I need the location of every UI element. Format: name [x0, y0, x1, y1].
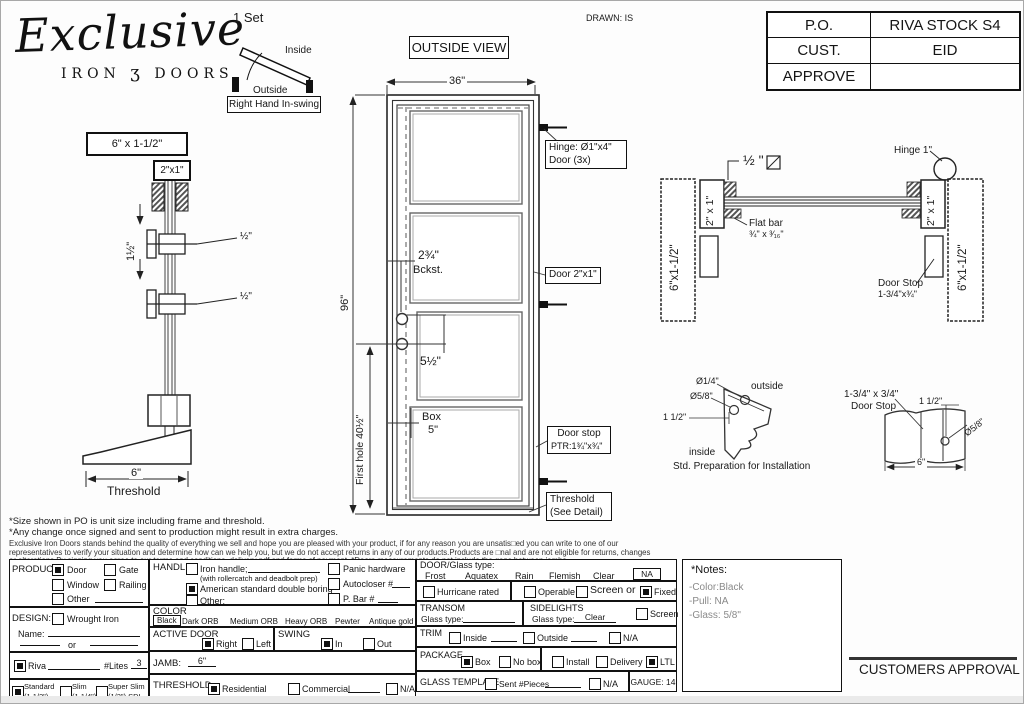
- checkbox-screen[interactable]: [576, 586, 588, 598]
- jamb-section: JAMB: 6": [149, 651, 416, 674]
- po-row: CUST. EID: [768, 38, 1019, 63]
- corner-dim: 1 1/2": [663, 413, 686, 423]
- checkbox-pkg-install[interactable]: [552, 656, 564, 668]
- swing-out-label: Out: [377, 639, 392, 649]
- checkbox-commercial[interactable]: [288, 683, 300, 695]
- checkbox-product-window[interactable]: [52, 579, 64, 591]
- super-slim-label: Super Slim: [108, 682, 145, 691]
- p-bar-field[interactable]: [378, 592, 398, 603]
- trim-inside-label: Inside: [463, 633, 487, 643]
- customers-approval-label: CUSTOMERS APPROVAL: [859, 663, 1020, 678]
- disclaimer-line2: *Any change once signed and sent to prod…: [9, 528, 338, 538]
- notes-box: *Notes: -Color:Black -Pull: NA -Glass: 5…: [682, 559, 842, 692]
- checkbox-american-boring[interactable]: [186, 583, 198, 595]
- checkbox-trim-outside[interactable]: [523, 632, 535, 644]
- notes-color: -Color:Black: [689, 582, 743, 593]
- glass-frost[interactable]: Frost: [425, 571, 446, 581]
- p-bar-label: P. Bar #: [343, 594, 374, 604]
- swing-outside-label: Outside: [253, 85, 287, 96]
- checkbox-pkg-delivery[interactable]: [596, 656, 608, 668]
- plan-right-frame-label: 2" x 1": [926, 196, 938, 226]
- notes-pull: -Pull: NA: [689, 596, 728, 607]
- pkg-nobox-label: No box: [513, 657, 542, 667]
- notes-glass: -Glass: 5/8": [689, 610, 741, 621]
- residential-label: Residential: [222, 684, 267, 694]
- glass-clear[interactable]: Clear: [593, 571, 615, 581]
- checkbox-pkg-nobox[interactable]: [499, 656, 511, 668]
- standard-label: Standard: [24, 682, 54, 691]
- commercial-field[interactable]: [348, 682, 380, 693]
- door-stop-note-line1: Door stop: [551, 428, 607, 441]
- color-black-selected[interactable]: Black: [153, 615, 181, 626]
- operable-fixed-section: Operable Screen or Fixed: [511, 581, 677, 601]
- transom-section: TRANSOM Glass type:: [416, 601, 523, 626]
- threshold-note-line1: Threshold: [550, 494, 608, 507]
- swing-section: SWING In Out: [274, 627, 416, 651]
- product-other-label: Other: [67, 594, 90, 604]
- checkbox-product-railing[interactable]: [104, 579, 116, 591]
- checkbox-sidelight-screen[interactable]: [636, 608, 648, 620]
- design-label: DESIGN:: [12, 613, 51, 624]
- threshold-note-box: Threshold (See Detail): [546, 492, 612, 521]
- color-section: COLOR Black Dark ORB Medium ORB Heavy OR…: [149, 605, 416, 627]
- checkbox-threshold-na[interactable]: [386, 683, 398, 695]
- trim-outside-label: Outside: [537, 633, 568, 643]
- trim-inside-field[interactable]: [491, 631, 517, 642]
- cust-label: CUST.: [768, 38, 871, 62]
- pkg-install-label: Install: [566, 657, 590, 667]
- threshold-note-line2: (See Detail): [550, 507, 608, 520]
- operable-label: Operable: [538, 587, 575, 597]
- checkbox-active-left[interactable]: [242, 638, 254, 650]
- threshold-label: Threshold: [107, 485, 160, 498]
- outside-view-label: OUTSIDE VIEW: [409, 36, 509, 59]
- po-value: RIVA STOCK S4: [871, 13, 1019, 37]
- hurricane-label: Hurricane rated: [437, 587, 499, 597]
- checkbox-fixed[interactable]: [640, 586, 652, 598]
- product-other-field[interactable]: [95, 592, 143, 603]
- notes-title: *Notes:: [691, 564, 727, 576]
- plan-left-frame-label: 2" x 1": [705, 196, 717, 226]
- checkbox-residential[interactable]: [208, 683, 220, 695]
- sidelights-section: SIDELIGHTS Glass type: Clear Screen: [523, 601, 677, 626]
- checkbox-autocloser[interactable]: [328, 578, 340, 590]
- sent-pieces-field[interactable]: [545, 677, 581, 688]
- glass-template-section: GLASS TEMPLATE Sent #Pieces N/A: [416, 671, 629, 692]
- jamb-form-label: JAMB:: [153, 658, 181, 669]
- jamb-elevation-drawing: [83, 181, 237, 487]
- package-left-section: PACKAGE Box No box: [416, 647, 541, 671]
- checkbox-hurricane[interactable]: [423, 586, 435, 598]
- swing-inside-label: Inside: [285, 45, 312, 56]
- swing-in-label: In: [335, 639, 343, 649]
- corner-dia-small: Ø1/4": [696, 377, 719, 387]
- door-width-dim: 36": [447, 75, 467, 87]
- plan-door-stop-size: 1-3/4"x¾": [878, 290, 917, 300]
- trim-label: TRIM: [420, 628, 442, 638]
- disclaimer-line1: *Size shown in PO is unit size including…: [9, 517, 265, 527]
- transom-label: TRANSOM: [420, 603, 465, 613]
- checkbox-p-bar[interactable]: [328, 593, 340, 605]
- package-label: PACKAGE: [420, 650, 463, 660]
- flatbar-callout-top: ½": [240, 231, 252, 242]
- lites-value[interactable]: 3: [131, 658, 147, 669]
- riva-label: Riva: [28, 661, 46, 671]
- commercial-label: Commercial: [302, 684, 350, 694]
- backset-dim: 2¾": [418, 249, 439, 262]
- plan-hinge-label: Hinge 1": [894, 145, 932, 156]
- checkbox-trim-inside[interactable]: [449, 632, 461, 644]
- trim-outside-field[interactable]: [571, 631, 597, 642]
- transom-glass-field[interactable]: [463, 612, 515, 623]
- po-row: APPROVE: [768, 64, 1019, 89]
- hurricane-section: Hurricane rated: [416, 581, 511, 601]
- checkbox-operable[interactable]: [524, 586, 536, 598]
- first-hole-dim: First hole 40½": [355, 415, 367, 485]
- pkg-box-label: Box: [475, 657, 491, 667]
- threshold-form-label: THRESHOLD: [153, 680, 212, 691]
- checkbox-swing-in[interactable]: [321, 638, 333, 650]
- approve-value[interactable]: [871, 64, 1019, 89]
- po-row: P.O. RIVA STOCK S4: [768, 13, 1019, 38]
- design-section: DESIGN: Wrought Iron Name: or: [9, 607, 149, 652]
- door-tube-note-box: Door 2"x1": [545, 267, 601, 284]
- corner-outside-label: outside: [751, 381, 783, 392]
- product-door-label: Door: [67, 565, 87, 575]
- corner-inside-label: inside: [689, 447, 715, 458]
- flat-bar-label: Flat bar: [749, 218, 783, 229]
- iron-handle-note: (with rollercatch and deadbolt prep): [200, 574, 318, 583]
- corner-dia-big: Ø5/8": [690, 392, 713, 402]
- approval-signature-line[interactable]: [849, 657, 1017, 660]
- stop-detail-title2: Door Stop: [851, 401, 896, 412]
- sidelights-glass-value[interactable]: Clear: [574, 612, 616, 623]
- hinge-note-line1: Hinge: Ø1"x4": [549, 142, 623, 155]
- autocloser-label: Autocloser #: [343, 579, 393, 589]
- door-height-dim: 96": [339, 295, 351, 311]
- swing-form-label: SWING: [278, 629, 310, 640]
- color-medium-orb[interactable]: Medium ORB: [230, 617, 278, 626]
- checkbox-wrought-iron[interactable]: [52, 613, 64, 625]
- checkbox-swing-out[interactable]: [363, 638, 375, 650]
- checkbox-product-door[interactable]: [52, 564, 64, 576]
- checkbox-product-other[interactable]: [52, 593, 64, 605]
- door-stop-note-box: Door stop PTR:1¾"x¾": [547, 426, 611, 454]
- approve-label: APPROVE: [768, 64, 871, 89]
- active-right-label: Right: [216, 639, 237, 649]
- checkbox-sent-pieces[interactable]: [485, 678, 497, 690]
- transom-glass-label: Glass type:: [421, 614, 464, 624]
- pkg-delivery-label: Delivery: [610, 657, 643, 667]
- drawn-by-label: DRAWN: IS: [586, 14, 633, 24]
- door-glass-section: DOOR/Glass type: Frost Aquatex Rain Flem…: [416, 559, 677, 581]
- or-dash-right: [90, 645, 138, 646]
- sidelight-screen-label: Screen: [650, 609, 679, 619]
- bottom-margin-strip: [1, 696, 1024, 704]
- hinge-note-box: Hinge: Ø1"x4" Door (3x): [545, 140, 627, 169]
- po-label: P.O.: [768, 13, 871, 37]
- door-stop-note-line2: PTR:1¾"x¾": [551, 441, 607, 452]
- stop-detail-width: 6": [915, 458, 927, 468]
- jamb-value[interactable]: 6": [188, 656, 216, 667]
- jamb-frame-size-label: 2"x1": [153, 160, 191, 181]
- hinge-note-line2: Door (3x): [549, 155, 623, 168]
- flatbar-callout-bottom: ½": [240, 291, 252, 302]
- checkbox-trim-na[interactable]: [609, 632, 621, 644]
- fixed-label: Fixed: [654, 587, 676, 597]
- glass-na-selected[interactable]: NA: [633, 568, 661, 580]
- door-glass-label: DOOR/Glass type:: [420, 560, 495, 570]
- product-railing-label: Railing: [119, 580, 147, 590]
- logo-ornament-icon: ʒ: [130, 63, 145, 83]
- stop-detail-title1: 1-3/4" x 3/4": [844, 389, 898, 400]
- handle-other-field[interactable]: [228, 594, 324, 605]
- threshold-na-label: N/A: [400, 684, 415, 694]
- box-label: Box: [422, 411, 441, 423]
- checkbox-iron-handle[interactable]: [186, 563, 198, 575]
- active-left-label: Left: [256, 639, 271, 649]
- wrought-iron-label: Wrought Iron: [67, 614, 119, 624]
- plan-right-jamb-label: 6"x1-1/2": [957, 244, 970, 291]
- checkbox-product-gate[interactable]: [104, 564, 116, 576]
- box-dim: 5": [428, 424, 438, 436]
- product-section: PRODUCT: Door Gate Window Railing Other: [9, 559, 149, 607]
- iron-handle-field[interactable]: [248, 562, 320, 573]
- screen-or-label: Screen or: [590, 584, 636, 596]
- set-count-label: 1 Set: [233, 11, 263, 25]
- checkbox-panic-hardware[interactable]: [328, 563, 340, 575]
- logo-sub-left: IRON: [61, 66, 121, 82]
- glass-aquatex[interactable]: Aquatex: [465, 571, 498, 581]
- color-antique-gold[interactable]: Antique gold: [369, 617, 413, 626]
- po-table: P.O. RIVA STOCK S4 CUST. EID APPROVE: [766, 11, 1021, 91]
- riva-field[interactable]: [48, 659, 100, 670]
- backset-label: Bckst.: [413, 264, 443, 276]
- design-name-field[interactable]: [48, 626, 140, 637]
- glass-flemish[interactable]: Flemish: [549, 571, 581, 581]
- lites-label: #Lites: [104, 661, 128, 671]
- package-right-section: Install Delivery LTL: [541, 647, 677, 671]
- sent-pieces-label: Sent #Pieces: [499, 679, 549, 689]
- checkbox-riva[interactable]: [14, 660, 26, 672]
- logo-script-title: Exclusive: [14, 1, 246, 63]
- bar-spacing-dim: 1½": [125, 242, 137, 261]
- glass-rain[interactable]: Rain: [515, 571, 534, 581]
- or-label: or: [68, 640, 76, 650]
- or-dash-left: [20, 645, 60, 646]
- cust-value: EID: [871, 38, 1019, 62]
- pkg-ltl-label: LTL: [660, 657, 675, 667]
- swing-caption-box: Right Hand In-swing: [227, 96, 321, 113]
- design-name-label: Name:: [18, 629, 45, 639]
- stop-detail-dim: 1 1/2": [919, 397, 942, 407]
- sidelights-glass-label: Glass type:: [532, 614, 575, 624]
- door-front-view-drawing: [353, 82, 567, 515]
- plan-section-drawing: [661, 151, 983, 321]
- trim-na-label: N/A: [623, 633, 638, 643]
- logo-sub-right: DOORS: [154, 66, 233, 82]
- product-gate-label: Gate: [119, 565, 139, 575]
- american-boring-label: American standard double boring: [200, 584, 333, 594]
- plan-door-stop-label: Door Stop: [878, 278, 923, 289]
- iron-handle-label: Iron handle;: [200, 564, 248, 574]
- color-pewter[interactable]: Pewter: [335, 617, 360, 626]
- riva-section: Riva #Lites 3: [9, 652, 149, 679]
- order-drawing-sheet: Exclusive IRON ʒ DOORS 1 Set Inside Outs…: [0, 0, 1024, 704]
- slim-label: Slim: [72, 682, 87, 691]
- checkbox-pkg-box[interactable]: [461, 656, 473, 668]
- jamb-head-size-label: 6" x 1-1/2": [86, 132, 188, 156]
- handle-section: HANDLE Iron handle; (with rollercatch an…: [149, 559, 416, 605]
- template-na-label: N/A: [603, 679, 618, 689]
- threshold-width-dim: 6": [129, 467, 143, 479]
- checkbox-pkg-ltl[interactable]: [646, 656, 658, 668]
- logo-subtitle: IRON ʒ DOORS: [61, 63, 234, 83]
- corner-caption: Std. Preparation for Installation: [673, 461, 810, 472]
- color-heavy-orb[interactable]: Heavy ORB: [285, 617, 327, 626]
- checkbox-template-na[interactable]: [589, 678, 601, 690]
- flat-bar-size: ¾" x ³⁄₁₆": [749, 230, 784, 240]
- hole-spacing-dim: 5½": [420, 355, 441, 368]
- checkbox-active-right[interactable]: [202, 638, 214, 650]
- gauge-cell: GAUGE: 14: [629, 671, 677, 692]
- panic-hardware-label: Panic hardware: [343, 564, 406, 574]
- product-window-label: Window: [67, 580, 99, 590]
- autocloser-field[interactable]: [392, 577, 410, 588]
- trim-section: TRIM Inside Outside N/A: [416, 626, 677, 647]
- plan-gap-dim: ½ ": [743, 153, 764, 168]
- color-dark-orb[interactable]: Dark ORB: [182, 617, 218, 626]
- active-door-section: ACTIVE DOOR Right Left: [149, 627, 274, 651]
- plan-left-jamb-label: 6"x1-1/2": [669, 244, 682, 291]
